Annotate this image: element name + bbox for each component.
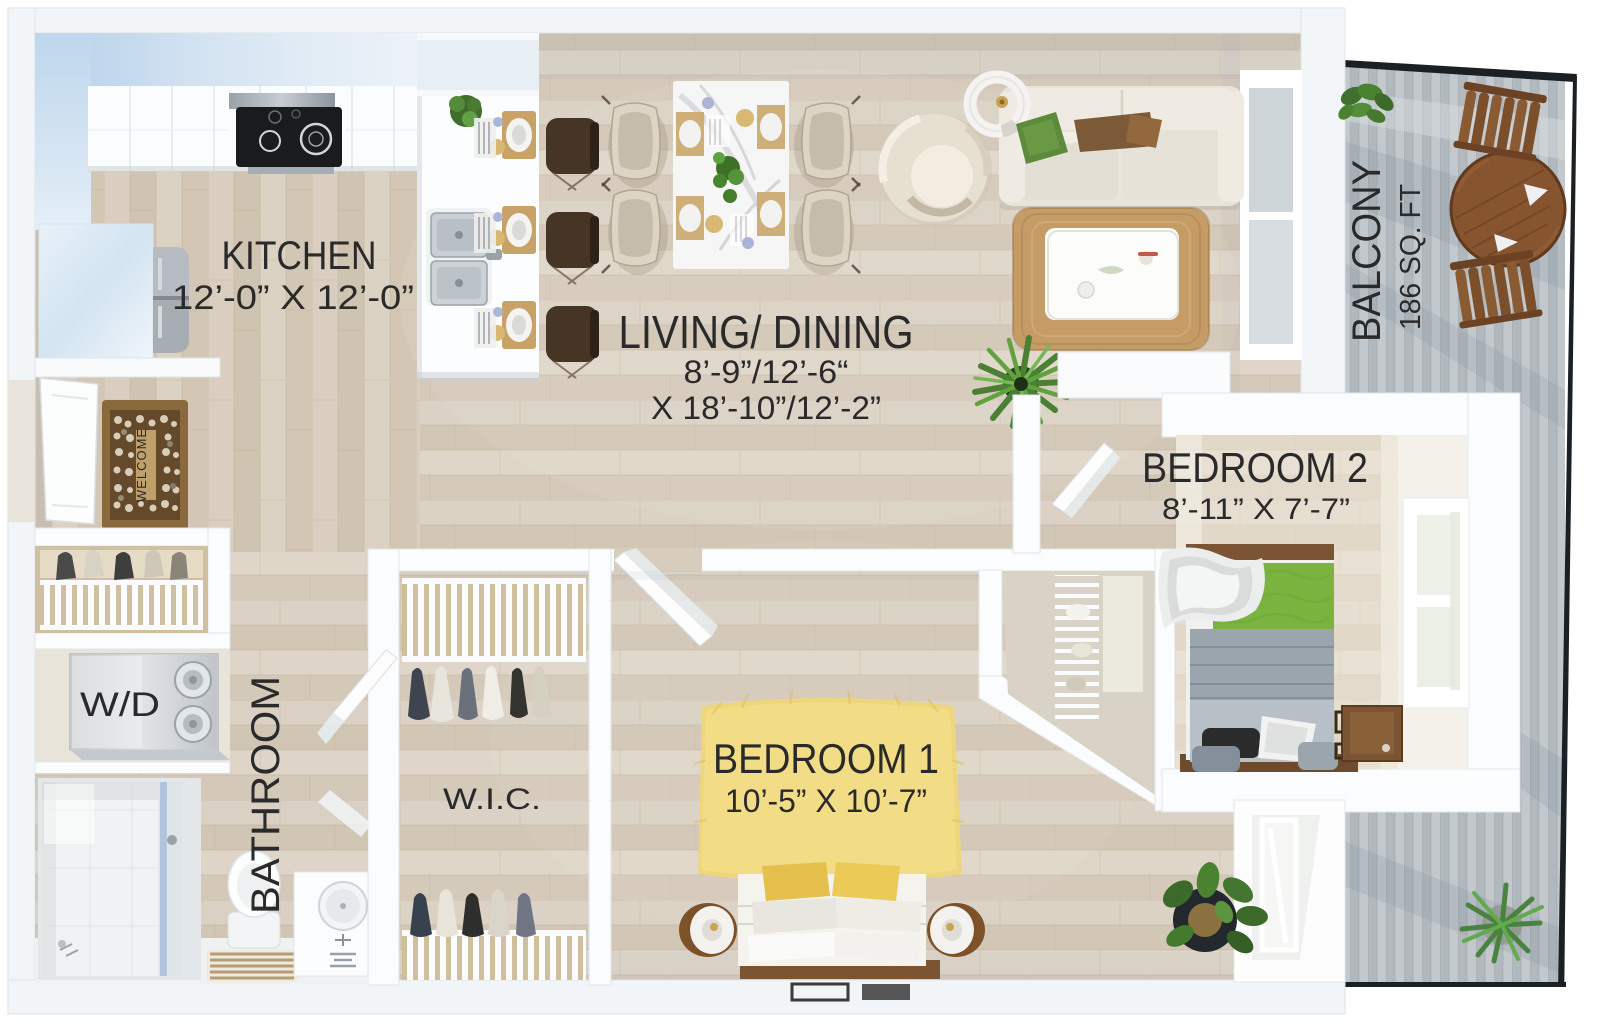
svg-text:BEDROOM 1: BEDROOM 1 bbox=[713, 735, 939, 782]
svg-text:8’-11” X 7’-7”: 8’-11” X 7’-7” bbox=[1162, 493, 1350, 526]
svg-text:KITCHEN: KITCHEN bbox=[222, 234, 377, 278]
svg-text:BALCONY: BALCONY bbox=[1345, 160, 1389, 342]
svg-text:186 SQ. FT: 186 SQ. FT bbox=[1395, 184, 1427, 330]
svg-text:X 18’-10”/12’-2”: X 18’-10”/12’-2” bbox=[651, 390, 881, 426]
svg-text:W.I.C.: W.I.C. bbox=[443, 783, 541, 816]
svg-text:WELCOME: WELCOME bbox=[134, 428, 149, 502]
svg-text:LIVING/ DINING: LIVING/ DINING bbox=[619, 306, 914, 358]
svg-text:BEDROOM 2: BEDROOM 2 bbox=[1142, 444, 1368, 491]
svg-text:BATHROOM: BATHROOM bbox=[244, 676, 288, 914]
svg-text:W/D: W/D bbox=[80, 686, 160, 724]
svg-text:12’-0” X 12’-0”: 12’-0” X 12’-0” bbox=[172, 279, 414, 317]
svg-text:10’-5” X 10’-7”: 10’-5” X 10’-7” bbox=[725, 783, 927, 819]
svg-text:8’-9”/12’-6“: 8’-9”/12’-6“ bbox=[684, 354, 849, 390]
